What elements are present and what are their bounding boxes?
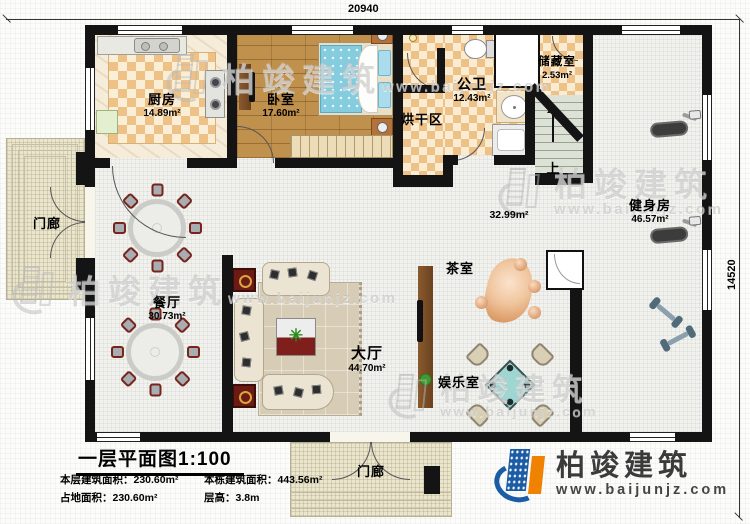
fireplace-arc bbox=[554, 254, 580, 284]
mahjong-table-group bbox=[492, 367, 528, 403]
window bbox=[622, 25, 680, 35]
door-opening bbox=[85, 187, 95, 258]
company-logo-icon bbox=[496, 446, 548, 504]
tea-stool bbox=[528, 280, 541, 293]
bed-blanket bbox=[320, 45, 362, 113]
window bbox=[702, 250, 712, 310]
sofa-pillow bbox=[241, 305, 251, 315]
dining-chair bbox=[151, 260, 163, 273]
nightstand bbox=[371, 118, 393, 136]
toilet bbox=[464, 39, 487, 59]
window bbox=[452, 25, 483, 35]
coffee-table: ✳ bbox=[276, 318, 316, 356]
company-website: www.baijunjz.com bbox=[556, 482, 729, 498]
dimension-line-right bbox=[739, 19, 740, 518]
wall bbox=[675, 432, 712, 442]
wall bbox=[403, 85, 441, 93]
sofa-pillow bbox=[287, 267, 297, 277]
wall bbox=[395, 175, 445, 187]
wall bbox=[187, 158, 237, 168]
sink-basin bbox=[159, 42, 168, 51]
room-label-drying: 烘干区 bbox=[401, 112, 443, 128]
window bbox=[630, 432, 675, 442]
room-label-kitchen: 厨房 14.89m² bbox=[143, 92, 180, 120]
sofa-pillow bbox=[242, 358, 252, 368]
kitchen-cabinet bbox=[96, 110, 118, 134]
corner-cabinet bbox=[232, 268, 256, 292]
wall bbox=[275, 158, 403, 168]
bed-duvet bbox=[358, 45, 378, 113]
corner-cabinet bbox=[232, 384, 256, 408]
room-label-bathroom: 公卫 12.43m² bbox=[453, 76, 490, 105]
wall bbox=[85, 432, 97, 442]
mahjong-table bbox=[485, 360, 536, 411]
dining-table bbox=[126, 323, 184, 381]
window bbox=[118, 25, 182, 35]
bathroom-sink bbox=[501, 95, 527, 119]
room-label-bottom-porch: 门廊 bbox=[357, 464, 385, 480]
dining-chair bbox=[113, 222, 126, 234]
tea-stool bbox=[514, 258, 527, 271]
television bbox=[417, 300, 423, 342]
window bbox=[97, 432, 140, 442]
wall bbox=[85, 25, 95, 68]
tea-stool bbox=[475, 296, 488, 309]
hall-area-note: 32.99m² bbox=[489, 209, 528, 221]
stairs-up-label: 上 bbox=[546, 158, 559, 177]
wall bbox=[140, 432, 330, 442]
ceiling-lamp-icon bbox=[409, 34, 417, 42]
wall bbox=[483, 25, 622, 35]
treadmill-belt bbox=[650, 226, 689, 244]
room-label-storage: 储藏室 2.53m² bbox=[538, 56, 576, 81]
room-label-left-porch: 门廊 bbox=[33, 216, 61, 232]
kitchen-sink bbox=[134, 38, 180, 53]
room-label-bedroom: 卧室 17.60m² bbox=[262, 92, 299, 120]
wall bbox=[570, 288, 582, 432]
kitchen-stove bbox=[205, 70, 225, 118]
wall bbox=[702, 160, 712, 250]
plant-pot-icon bbox=[419, 372, 432, 387]
dining-chair bbox=[189, 222, 202, 234]
round-table bbox=[126, 323, 184, 381]
room-label-entertainment: 娱乐室 bbox=[438, 375, 480, 391]
stat-floor-height: 层高：3.8m bbox=[204, 490, 322, 505]
door-opening bbox=[330, 432, 410, 442]
wall bbox=[182, 25, 292, 35]
dining-chair bbox=[149, 384, 161, 397]
dimension-right-value: 14520 bbox=[726, 259, 738, 290]
wall bbox=[222, 255, 233, 432]
wall bbox=[583, 25, 593, 183]
stat-total-area: 本栋建筑面积：443.56m² bbox=[204, 472, 322, 487]
stat-footprint-area: 占地面积：230.60m² bbox=[60, 490, 192, 505]
fireplace bbox=[546, 250, 584, 290]
company-logo: 柏竣建筑 www.baijunjz.com bbox=[496, 446, 750, 504]
treadmill bbox=[649, 110, 703, 144]
room-label-tea: 茶室 bbox=[446, 261, 474, 277]
stove-burner bbox=[210, 77, 221, 88]
wall bbox=[227, 35, 237, 158]
treadmill-belt bbox=[650, 120, 689, 138]
room-label-gym: 健身房 46.57m² bbox=[629, 198, 671, 226]
dimension-line-top bbox=[6, 19, 740, 20]
stove-burner bbox=[210, 99, 221, 110]
wall bbox=[76, 258, 95, 290]
wall bbox=[393, 35, 403, 187]
window bbox=[85, 68, 95, 130]
wall bbox=[437, 48, 445, 93]
wall bbox=[410, 432, 630, 442]
room-label-hall: 大厅 44.70m² bbox=[348, 345, 385, 375]
wall bbox=[443, 155, 453, 187]
sink-basin bbox=[141, 42, 150, 51]
wall bbox=[702, 25, 712, 95]
bed-pillow bbox=[378, 82, 391, 108]
porch-step bbox=[290, 508, 452, 509]
wardrobe bbox=[290, 135, 393, 158]
wall bbox=[76, 152, 95, 185]
floor-plan-canvas: 20940 14520 bbox=[0, 0, 750, 524]
sofa-pillow bbox=[269, 269, 280, 280]
window bbox=[292, 25, 353, 35]
wall bbox=[95, 158, 110, 168]
porch-pillar bbox=[424, 466, 440, 494]
shower-stall bbox=[494, 30, 540, 88]
wall bbox=[353, 25, 452, 35]
room-label-dining: 餐厅 30.73m² bbox=[148, 295, 185, 323]
tea-stool bbox=[528, 306, 541, 319]
bed-pillow bbox=[378, 50, 391, 76]
dining-chair bbox=[111, 346, 124, 358]
shower-glass bbox=[497, 129, 525, 151]
treadmill-console bbox=[689, 110, 702, 120]
wall bbox=[525, 88, 535, 165]
dimension-top-value: 20940 bbox=[348, 3, 379, 15]
window bbox=[85, 318, 95, 380]
dining-chair bbox=[187, 346, 200, 358]
treadmill-console bbox=[689, 216, 702, 226]
plan-stats: 本层建筑面积：230.60m² 本栋建筑面积：443.56m² 占地面积：230… bbox=[60, 472, 322, 505]
stat-floor-area: 本层建筑面积：230.60m² bbox=[60, 472, 192, 487]
company-name: 柏竣建筑 bbox=[556, 450, 692, 482]
wall bbox=[702, 310, 712, 442]
plant-icon: ✳ bbox=[289, 326, 303, 346]
window bbox=[702, 95, 712, 160]
sofa-pillow bbox=[273, 385, 283, 395]
sofa-pillow bbox=[312, 385, 322, 395]
bedroom-tv bbox=[249, 72, 255, 102]
